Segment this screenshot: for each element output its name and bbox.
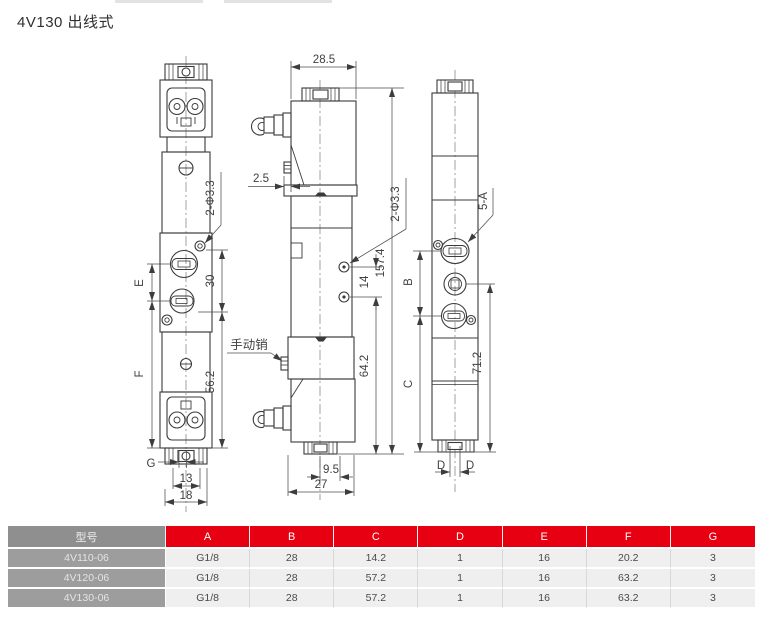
table-cell: 57.2 <box>334 569 418 589</box>
rear-dim-b: B <box>403 278 415 286</box>
side-dim-2-5: 2.5 <box>253 173 269 185</box>
front-dim-30: 30 <box>205 275 217 288</box>
table-row-model: 4V110-06 <box>8 549 166 569</box>
front-dim-e: E <box>134 279 146 287</box>
table-cell: 1 <box>418 549 502 569</box>
table-cell: 28 <box>250 569 334 589</box>
table-cell: 16 <box>503 589 587 609</box>
front-hole-label: 2-Φ3.3 <box>205 180 217 215</box>
col-header-b: B <box>250 526 334 549</box>
table-cell: 63.2 <box>587 589 671 609</box>
table-cell: 1 <box>418 589 502 609</box>
rear-dim-c: C <box>403 380 415 388</box>
table-cell: 63.2 <box>587 569 671 589</box>
col-header-f: F <box>587 526 671 549</box>
table-cell: G1/8 <box>166 569 250 589</box>
front-dim-f: F <box>134 370 146 377</box>
table-cell: G1/8 <box>166 549 250 569</box>
table-cell: 1 <box>418 569 502 589</box>
table-cell: 16 <box>503 569 587 589</box>
front-dim-g: G <box>147 458 156 470</box>
col-header-c: C <box>334 526 418 549</box>
front-dim-18: 18 <box>180 490 193 502</box>
side-dim-14: 14 <box>359 275 371 288</box>
rear-port-label: 5-A <box>478 192 490 210</box>
technical-drawing: 2-Φ3.3 30 E F 56.2 G 13 18 <box>0 0 762 520</box>
front-dim-56-2: 56.2 <box>205 371 217 393</box>
table-row-model: 4V120-06 <box>8 569 166 589</box>
side-view-dims <box>227 61 406 496</box>
table-cell: 57.2 <box>334 589 418 609</box>
side-dim-27: 27 <box>315 479 328 491</box>
table-cell: 20.2 <box>587 549 671 569</box>
table-cell: 3 <box>671 589 755 609</box>
col-header-d: D <box>418 526 502 549</box>
side-view <box>252 80 358 500</box>
col-header-e: E <box>503 526 587 549</box>
table-cell: 28 <box>250 549 334 569</box>
rear-view-dims <box>413 188 496 477</box>
side-dim-28-5: 28.5 <box>313 54 335 66</box>
col-header-a: A <box>166 526 250 549</box>
table-cell: 3 <box>671 569 755 589</box>
front-view-labels: 2-Φ3.3 30 E F 56.2 G 13 18 <box>134 180 217 502</box>
table-cell: G1/8 <box>166 589 250 609</box>
rear-view <box>432 70 478 492</box>
col-header-model: 型号 <box>8 526 166 549</box>
table-cell: 28 <box>250 589 334 609</box>
rear-view-labels: 5-A B C 71.2 D D <box>403 192 490 472</box>
side-dim-64-2: 64.2 <box>359 355 371 377</box>
table-row-model: 4V130-06 <box>8 589 166 609</box>
side-hole-label: 2-Φ3.3 <box>390 186 402 221</box>
rear-dim-71-2: 71.2 <box>472 352 484 374</box>
side-dim-157-4: 157.4 <box>375 248 387 277</box>
table-cell: 16 <box>503 549 587 569</box>
col-header-g: G <box>671 526 755 549</box>
rear-dim-d-left: D <box>437 460 445 472</box>
front-dim-13: 13 <box>180 473 193 485</box>
manual-pin-label: 手动销 <box>230 338 268 352</box>
table-cell: 14.2 <box>334 549 418 569</box>
spec-table: 型号 A B C D E F G 4V110-06 G1/8 28 14.2 1… <box>8 526 755 609</box>
side-dim-9-5: 9.5 <box>323 464 339 476</box>
table-cell: 3 <box>671 549 755 569</box>
rear-dim-d-right: D <box>466 460 474 472</box>
